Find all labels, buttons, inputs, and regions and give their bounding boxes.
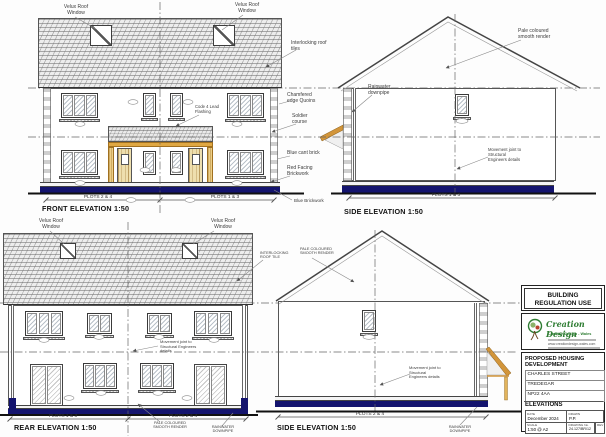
scale-field: SCALE 1:50 @ A2 [525,422,567,435]
front-door-canopy-roof [108,126,213,142]
front-window [61,150,98,175]
front-velux-window-left [90,25,112,46]
sidetop-quoins [343,88,352,181]
window-sill [59,119,100,123]
sidebottom-wall [278,301,485,400]
rear-velux-window-right [182,243,198,259]
front-elevation-title: FRONT ELEVATION 1:50 [42,204,129,213]
rear-window [194,311,232,336]
rear-window [25,311,63,336]
interlocking-roof-tile-label: INTERLOCKING ROOF TILE [260,251,287,260]
sidebottom-movement-label: Movement joint to Structural Engineers d… [409,366,445,380]
logo-website-text: www.creationdesign-wales.com [548,342,595,346]
rear-downpipe-left [11,305,15,398]
front-roof [38,18,282,88]
window-sill [59,176,100,180]
front-blue-cant-label: Blue cant brick [287,151,323,157]
title-block-use-box: BUILDING REGULATION USE [521,285,605,311]
front-soldier-label: Soldier course [292,114,320,126]
drawn-value: P.P. [567,416,603,421]
creation-design-logo-text: Creation Design [546,319,604,339]
rear-movement-label: Movement joint to Structural Engineers d… [160,340,204,354]
rear-plots-left-dim: PLOTS 1 & 3 [35,414,91,419]
sidebottom-plots-dim: PLOTS 2 & 4 [342,412,398,417]
front-window [143,151,156,175]
rear-downpipe-shoe-left [9,398,16,409]
window-sill [141,118,158,122]
window-sill [145,335,174,339]
drawing-sheet: Velux Roof Window Velux Roof Window Inte… [0,0,606,437]
creation-design-sub-text: Creation Design - Wales [548,332,591,336]
sidetop-movement-label: Movement joint to Structural Engineers d… [488,148,522,162]
sheet-title: ELEVATIONS [525,402,562,408]
front-velux-label-left: Velux Roof Window [55,5,97,17]
rear-downpipe-shoe-right [241,398,248,409]
front-window [227,93,264,118]
rear-window [87,313,112,334]
rear-window [83,363,117,389]
sidebottom-window [362,310,376,332]
window-sill [168,118,185,122]
creation-design-tree-logo [526,318,543,342]
scale-value: 1:50 @ A2 [526,427,566,432]
sidetop-window [455,94,469,116]
sidetop-wall [348,88,556,181]
date-value: December 2024 [526,416,566,421]
rear-velux-label-right: Velux Roof Window [202,219,244,231]
front-window [170,151,183,175]
window-sill [23,337,65,341]
rear-window [147,313,172,334]
front-plots-left-dim: PLOTS 2 & 4 [70,195,126,200]
front-door-right [188,148,203,183]
rear-downpipe-label: RAINWATER DOWNPIPE [207,425,239,434]
revision-field: REV [595,422,605,435]
front-plots-right-dim: PLOTS 1 & 3 [197,195,253,200]
sidetop-downpipe-label: Rainwater downpipe [368,85,400,97]
canopy-post [108,147,114,183]
front-quoins-right [270,88,278,183]
revision-label: REV [596,423,604,428]
title-block-logo-box: Creation Design Creation Design - Wales … [521,313,605,350]
window-sill [138,390,176,394]
sidetop-downpipe [353,88,356,181]
front-blue-brickwork-label: Blue Brickwork [294,198,336,203]
rear-velux-window-left [60,243,76,259]
window-sill [360,333,378,337]
rear-french-doors-left [30,364,63,406]
rear-plots-right-dim: PLOTS 2 & 4 [152,414,214,419]
rear-window [140,363,174,389]
front-window [227,150,264,175]
rear-velux-label-left: Velux Roof Window [30,219,72,231]
project-title-line1: PROPOSED HOUSING [525,356,584,363]
drawing-number-value: 24.127/BR/12 [567,427,594,431]
sidetop-elevation-title: SIDE ELEVATION 1:50 [344,207,423,216]
logo-contact-line [548,339,596,341]
front-blue-brick-plinth [40,187,280,194]
front-chamfered-label: Chamfered edge Quoins [287,93,321,105]
drawing-number-field: DRAWING No. 24.127/BR/12 [566,422,595,435]
sidebottom-elevation-title: SIDE ELEVATION 1:50 [277,423,356,432]
sidebottom-downpipe [474,303,477,398]
front-canopy-fascia [108,142,213,147]
front-window [143,93,156,117]
sidebottom-quoins [479,303,488,398]
sidebottom-blue-brick-plinth [275,401,488,407]
logo-contact-line [548,347,600,349]
front-code4-label: Code 4 Lead Flashing [195,105,227,115]
rear-downpipe-right [242,305,246,398]
canopy-post [207,147,213,183]
front-window [170,93,183,117]
front-door-left [117,148,132,183]
sidebottom-downpipe-label: RAINWATER DOWNPIPE [444,425,476,434]
title-block-project-box: PROPOSED HOUSING DEVELOPMENT CHARLES STR… [521,352,605,432]
rear-elevation-title: REAR ELEVATION 1:50 [14,423,97,432]
project-title-line2: DEVELOPMENT [525,362,584,369]
sidetop-render-label: Pale coloured smooth render [518,29,560,41]
rear-french-doors-right [194,364,227,406]
rear-roof [3,233,253,305]
building-regulation-line2: REGULATION USE [525,299,601,309]
front-velux-label-right: Velux Roof Window [226,3,268,15]
sidebottom-render-label: PALE COLOURED SMOOTH RENDER [300,247,338,256]
window-sill [225,119,266,123]
window-sill [453,117,471,121]
front-window [61,93,98,118]
front-interlocking-label: Interlocking roof tiles [291,41,327,53]
front-quoins-left [43,88,51,183]
front-red-facing-label: Red Facing Brickwork [287,166,317,178]
window-sill [225,176,266,180]
window-sill [81,390,119,394]
front-velux-window-right [213,25,235,46]
rear-render-label: PALE COLOURED SMOOTH RENDER [151,421,189,430]
sidetop-plots-dim: PLOTS 1 & 3 [418,193,474,198]
window-sill [85,335,114,339]
